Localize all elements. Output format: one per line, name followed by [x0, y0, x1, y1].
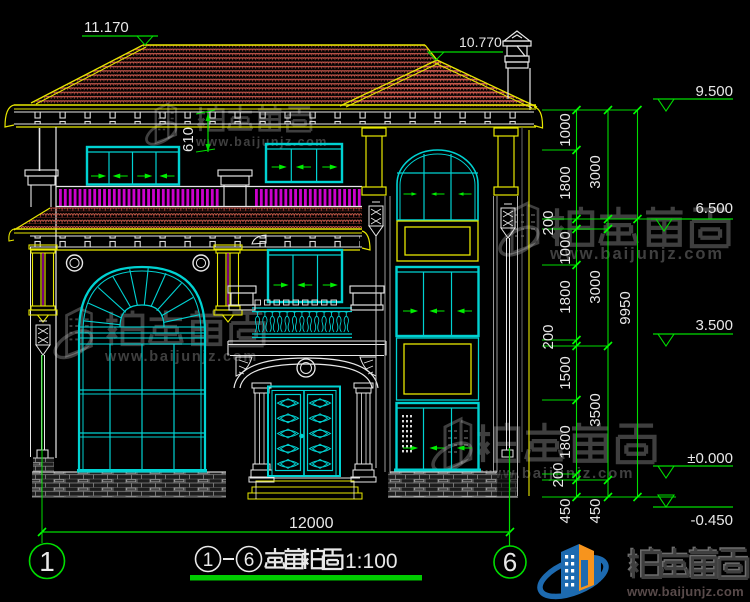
svg-text:www.baijunjz.com: www.baijunjz.com [626, 584, 744, 599]
svg-text:www.baijunjz.com: www.baijunjz.com [104, 349, 258, 365]
svg-text:1: 1 [39, 546, 55, 577]
svg-text:1: 1 [203, 550, 214, 571]
svg-text:1500: 1500 [557, 356, 574, 389]
svg-text:9950: 9950 [617, 291, 634, 324]
svg-text:10.770: 10.770 [459, 34, 502, 50]
svg-text:3000: 3000 [587, 270, 604, 303]
svg-text:6.500: 6.500 [695, 200, 733, 217]
svg-text:200: 200 [540, 324, 557, 349]
svg-text:1800: 1800 [557, 166, 574, 199]
svg-text:-0.450: -0.450 [690, 512, 733, 529]
svg-text:1000: 1000 [557, 231, 574, 264]
svg-text:www.baijunjz.com: www.baijunjz.com [195, 135, 328, 149]
svg-text:1000: 1000 [557, 113, 574, 146]
svg-text:1800: 1800 [557, 280, 574, 313]
svg-text:12000: 12000 [289, 515, 334, 532]
svg-text:3000: 3000 [587, 155, 604, 188]
svg-text:1:100: 1:100 [345, 550, 398, 573]
svg-text:1800: 1800 [557, 425, 574, 458]
svg-text:9.500: 9.500 [695, 83, 733, 100]
svg-text:±0.000: ±0.000 [687, 450, 733, 467]
svg-text:6: 6 [244, 550, 255, 571]
svg-text:www.baijunjz.com: www.baijunjz.com [549, 245, 724, 263]
svg-text:3.500: 3.500 [695, 317, 733, 334]
svg-text:450: 450 [587, 498, 604, 523]
svg-text:6: 6 [503, 547, 517, 577]
svg-text:11.170: 11.170 [84, 19, 129, 36]
svg-text:450: 450 [557, 498, 574, 523]
svg-text:200: 200 [550, 462, 567, 487]
svg-text:3500: 3500 [587, 393, 604, 426]
svg-text:200: 200 [540, 210, 557, 235]
svg-text:610: 610 [180, 127, 197, 152]
